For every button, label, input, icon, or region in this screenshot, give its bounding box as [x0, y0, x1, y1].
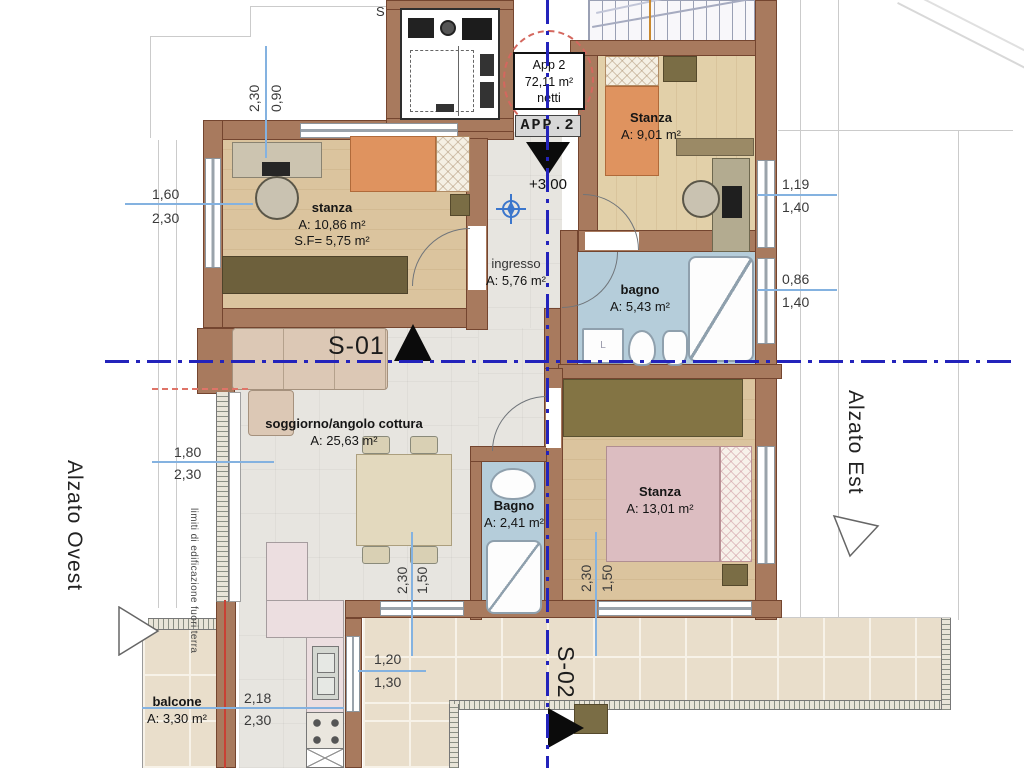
elevator-pulley	[440, 20, 456, 36]
terrace-border-hatch	[449, 700, 951, 710]
dim-line-win-terrace	[358, 670, 426, 672]
dim-label: 2,30	[244, 712, 271, 728]
dim-line-win-se	[595, 532, 597, 656]
red-dashed-line	[152, 388, 248, 390]
room-area: A: 5,43 m²	[598, 299, 682, 316]
window	[757, 160, 775, 248]
nightstand	[450, 194, 470, 216]
dim-line-win-nw	[125, 203, 253, 205]
wall-line	[229, 392, 241, 602]
sink-basin	[317, 677, 335, 695]
dim-label: 2,30	[174, 466, 201, 482]
dim-label: 1,30	[374, 674, 401, 690]
elevator-cab-outline	[410, 50, 474, 112]
dim-line-win-ne-upper	[757, 194, 837, 196]
floor-plan: L 1,60 2,30 2,30 0,90 1,19 1,40 0,86 1,4…	[0, 0, 1024, 768]
dim-label: 1,60	[152, 186, 179, 202]
boundary-hatch	[216, 392, 229, 602]
dim-label: 0,90	[268, 72, 284, 112]
room-label-ingresso: ingresso A: 5,76 m²	[478, 256, 554, 289]
desk-chair	[682, 180, 720, 218]
apartment-area: 72,11 m²	[515, 74, 583, 91]
room-name: Stanza	[618, 110, 684, 127]
terrace-border-hatch	[449, 704, 459, 768]
section-label-s01: S-01	[328, 332, 385, 361]
room-label-soggiorno: soggiorno/angolo cottura A: 25,63 m²	[258, 416, 430, 449]
nightstand	[722, 564, 748, 586]
elevator-machinery	[408, 18, 434, 38]
dim-label: 2,18	[244, 690, 271, 706]
elevation-label-west: Alzato Ovest	[62, 460, 86, 591]
boundary-note: limiti di edificazione fuori terra	[188, 508, 199, 678]
elevator	[400, 8, 500, 120]
centerline-vertical	[546, 0, 549, 768]
room-label-bagno-grande: bagno A: 5,43 m²	[598, 282, 682, 315]
dim-line-win-ne-lower	[757, 289, 837, 291]
laptop	[262, 162, 290, 176]
room-area-extra: S.F= 5,75 m²	[280, 233, 384, 250]
kitchen-counter	[266, 600, 344, 638]
dresser	[676, 138, 754, 156]
window	[598, 601, 752, 616]
room-area: A: 3,30 m²	[136, 711, 218, 728]
room-label-bagno-piccolo: Bagno A: 2,41 m²	[478, 498, 550, 531]
room-area: A: 13,01 m²	[612, 501, 708, 518]
dim-label: 2,30	[246, 72, 262, 112]
boundary-red-line	[224, 600, 226, 768]
laptop	[722, 186, 742, 218]
dim-label: 1,20	[374, 651, 401, 667]
window	[757, 258, 775, 344]
section-label-s02: S-02	[552, 646, 579, 699]
wall	[558, 364, 782, 379]
room-label-balcone: balcone A: 3,30 m²	[136, 694, 218, 727]
washer-label: L	[600, 340, 606, 351]
elevator-guide	[458, 46, 459, 116]
wall	[216, 600, 236, 768]
elevation-marker-east	[832, 512, 880, 558]
room-name: Stanza	[612, 484, 708, 501]
kitchen-cabinet	[306, 748, 344, 768]
centerline-horizontal	[105, 360, 1013, 363]
dim-label: 1,40	[782, 294, 809, 310]
grid-mark-label: S	[376, 4, 385, 19]
kitchen-counter	[266, 542, 308, 602]
elevator-rail	[480, 82, 494, 108]
room-area: A: 25,63 m²	[258, 433, 430, 450]
chair	[362, 546, 390, 564]
site-line	[150, 36, 151, 138]
nightstand	[663, 56, 697, 82]
room-name: soggiorno/angolo cottura	[258, 416, 430, 433]
elevator-machinery	[462, 18, 492, 40]
dim-line-win-living	[411, 532, 413, 656]
terrace-floor	[363, 704, 449, 768]
dim-label: 1,80	[174, 444, 201, 460]
room-area: A: 10,86 m²	[280, 217, 384, 234]
room-name: Bagno	[478, 498, 550, 515]
bed-pillow	[605, 56, 659, 86]
elevation-label-east: Alzato Est	[843, 390, 867, 495]
room-name: balcone	[136, 694, 218, 711]
dim-label: 2,30	[578, 550, 594, 592]
dim-label: 0,86	[782, 271, 809, 287]
site-line	[800, 0, 801, 668]
survey-point-icon	[494, 192, 528, 226]
terrace-floor	[363, 618, 951, 704]
elevator-counterweight	[436, 104, 454, 112]
terrace-border-hatch	[941, 618, 951, 710]
roof-line	[897, 2, 1024, 72]
shower	[486, 540, 542, 614]
shower	[688, 256, 754, 362]
window	[205, 158, 221, 268]
staircase	[588, 0, 755, 42]
room-label-stanza-ne: Stanza A: 9,01 m²	[618, 110, 684, 143]
room-area: A: 5,76 m²	[478, 273, 554, 290]
sink-basin	[317, 653, 335, 673]
apartment-info-box: App 2 72,11 m² netti	[513, 52, 585, 110]
apartment-area-note: netti	[515, 90, 583, 107]
dim-label: 1,50	[599, 550, 615, 592]
room-area: A: 9,01 m²	[618, 127, 684, 144]
dim-label: 1,40	[782, 199, 809, 215]
wardrobe	[222, 256, 408, 294]
kitchen-sink	[312, 646, 339, 700]
section-marker-s01	[394, 324, 432, 361]
site-line	[778, 130, 1013, 131]
dim-line-win-w	[152, 461, 274, 463]
bed	[350, 136, 436, 192]
site-line	[250, 6, 388, 7]
wall	[470, 446, 482, 620]
bed-pillow	[720, 446, 752, 562]
site-line	[958, 130, 959, 620]
stove	[306, 712, 344, 749]
room-label-stanza-se: Stanza A: 13,01 m²	[612, 484, 708, 517]
dim-line-win-top	[265, 46, 267, 158]
window	[346, 636, 360, 712]
washing-machine: L	[582, 328, 624, 364]
room-name: ingresso	[478, 256, 554, 273]
roof-line	[919, 0, 1024, 66]
elevator-rail	[480, 54, 494, 76]
wall	[570, 40, 757, 56]
elevation-marker-west	[118, 606, 160, 656]
room-label-stanza-nw: stanza A: 10,86 m² S.F= 5,75 m²	[280, 200, 384, 250]
dim-label: 2,30	[394, 552, 410, 594]
dim-label: 1,19	[782, 176, 809, 192]
section-marker-s02	[548, 708, 584, 748]
wardrobe	[563, 379, 743, 437]
site-line	[250, 6, 251, 37]
dim-label: 1,50	[414, 552, 430, 594]
window	[757, 446, 775, 564]
site-line	[838, 0, 839, 668]
apartment-name: App 2	[515, 57, 583, 74]
site-line	[150, 36, 250, 37]
window	[380, 601, 464, 616]
room-area: A: 2,41 m²	[478, 515, 550, 532]
stair-guide-line	[649, 0, 651, 40]
dim-label: 2,30	[152, 210, 179, 226]
dining-table	[356, 454, 452, 546]
room-name: stanza	[280, 200, 384, 217]
bed-pillow	[436, 136, 470, 192]
room-name: bagno	[598, 282, 682, 299]
sink	[490, 468, 536, 500]
